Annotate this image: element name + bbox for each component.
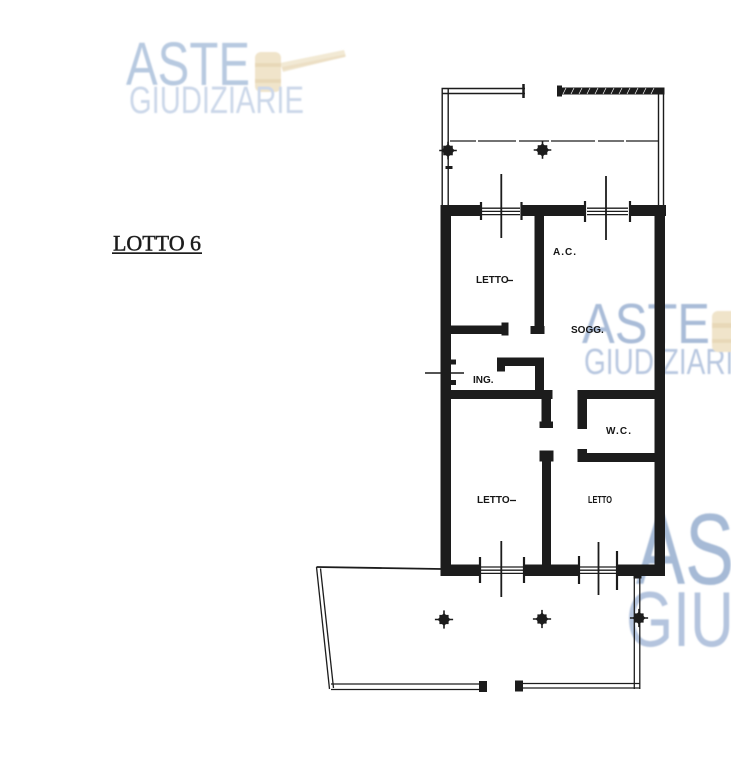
svg-text:ING.: ING. <box>473 375 494 386</box>
svg-text:LETTO: LETTO <box>476 275 509 286</box>
svg-text:LETTO: LETTO <box>588 494 612 506</box>
svg-text:SOGG.: SOGG. <box>571 325 604 336</box>
svg-text:GIUDIZIARIE: GIUDIZIARIE <box>129 80 304 122</box>
svg-text:W.C.: W.C. <box>606 426 631 437</box>
svg-text:LOTTO 6: LOTTO 6 <box>113 231 201 256</box>
svg-text:LETTO: LETTO <box>477 495 510 506</box>
svg-text:A.C.: A.C. <box>553 247 576 258</box>
